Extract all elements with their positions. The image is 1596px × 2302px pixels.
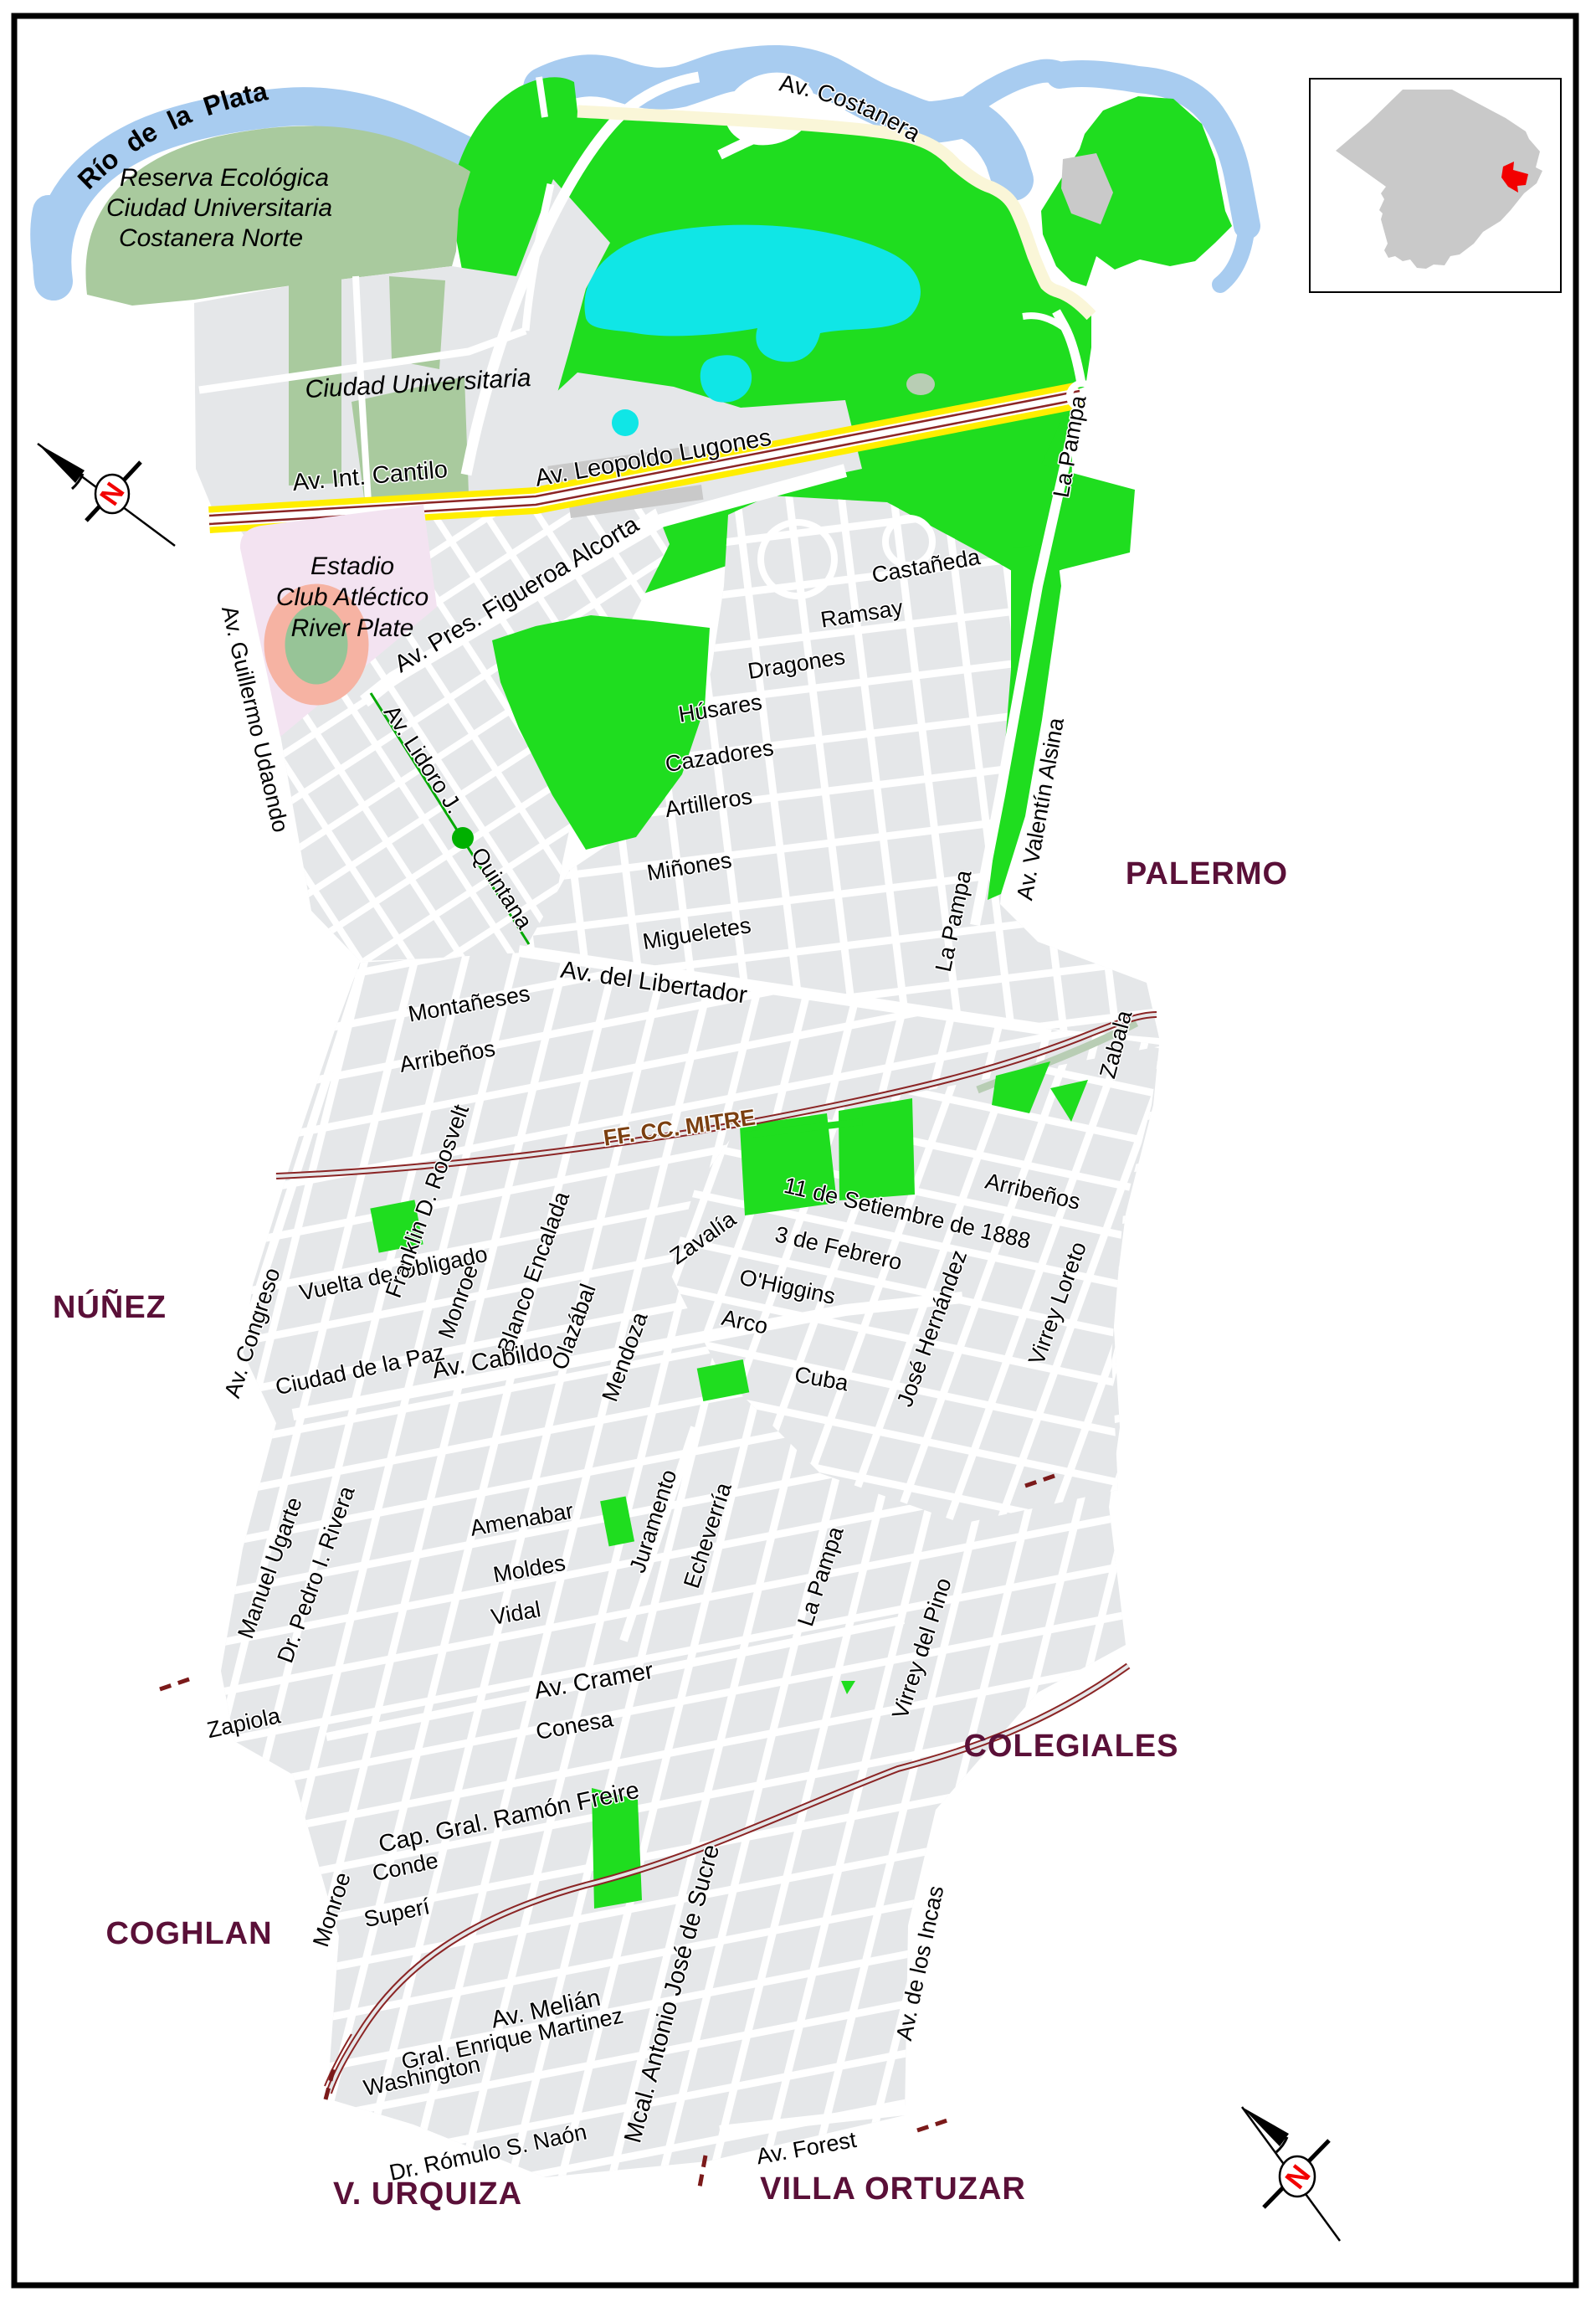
svg-text:Ciudad Universitaria: Ciudad Universitaria: [106, 194, 332, 222]
svg-text:VILLA ORTUZAR: VILLA ORTUZAR: [760, 2171, 1026, 2207]
svg-text:Reserva Ecológica: Reserva Ecológica: [120, 164, 329, 192]
svg-text:Club Atléctico: Club Atléctico: [276, 583, 429, 611]
svg-text:River Plate: River Plate: [291, 614, 414, 642]
svg-text:COGHLAN: COGHLAN: [105, 1916, 272, 1951]
svg-text:COLEGIALES: COLEGIALES: [963, 1729, 1178, 1764]
svg-text:Estadio: Estadio: [310, 552, 394, 580]
svg-text:Costanera Norte: Costanera Norte: [119, 224, 303, 252]
svg-text:V. URQUIZA: V. URQUIZA: [333, 2176, 522, 2212]
svg-text:PALERMO: PALERMO: [1126, 856, 1288, 892]
svg-text:NÚÑEZ: NÚÑEZ: [53, 1288, 167, 1325]
